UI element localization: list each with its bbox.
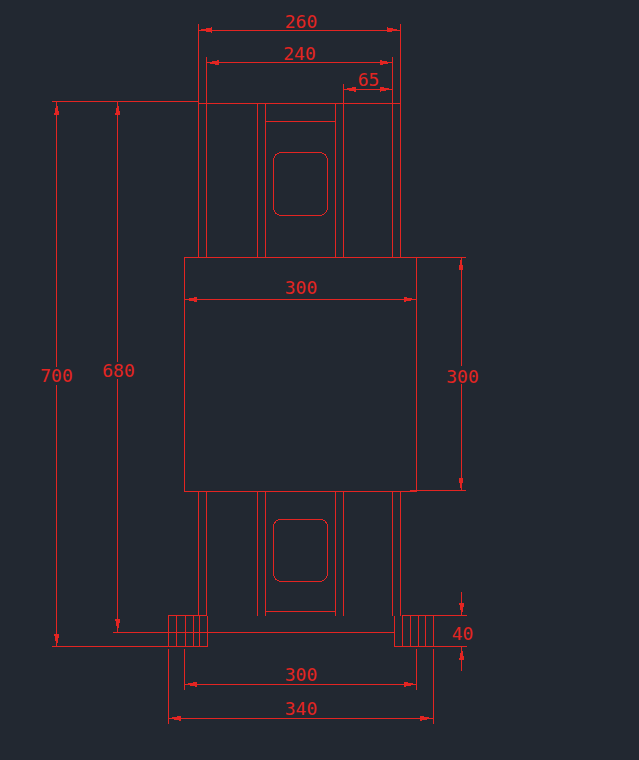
- dim-300-body-width-label[interactable]: 300: [285, 277, 318, 298]
- dim-body-height[interactable]: 300: [410, 257, 479, 490]
- dim-300-base-label[interactable]: 300: [285, 664, 318, 685]
- lower-column-outline[interactable]: [199, 492, 401, 616]
- dim-240-label[interactable]: 240: [283, 43, 316, 64]
- upper-column-outline[interactable]: [199, 103, 401, 257]
- dim-top-web-offset[interactable]: 65: [343, 69, 393, 103]
- upper-access-window: [274, 153, 328, 216]
- base-plate-outline[interactable]: [113, 616, 433, 647]
- dim-340-label[interactable]: 340: [285, 698, 318, 719]
- dim-65-label[interactable]: 65: [358, 69, 380, 90]
- dim-260-label[interactable]: 260: [285, 11, 318, 32]
- cad-drawing-canvas[interactable]: 260 240 65 300 700 6: [0, 0, 639, 760]
- dim-300-body-height-label[interactable]: 300: [446, 366, 479, 387]
- dim-base-thickness[interactable]: 40: [395, 592, 474, 671]
- dim-40-label[interactable]: 40: [452, 623, 474, 644]
- dim-base-outer-width[interactable]: 340: [168, 649, 433, 724]
- dim-700-label[interactable]: 700: [40, 365, 73, 386]
- dim-base-seat-height[interactable]: 680: [102, 102, 135, 632]
- dim-680-label[interactable]: 680: [102, 360, 135, 381]
- dim-body-width[interactable]: 300: [184, 277, 417, 302]
- dim-base-inner-width[interactable]: 300: [184, 649, 416, 690]
- lower-access-window: [274, 519, 328, 582]
